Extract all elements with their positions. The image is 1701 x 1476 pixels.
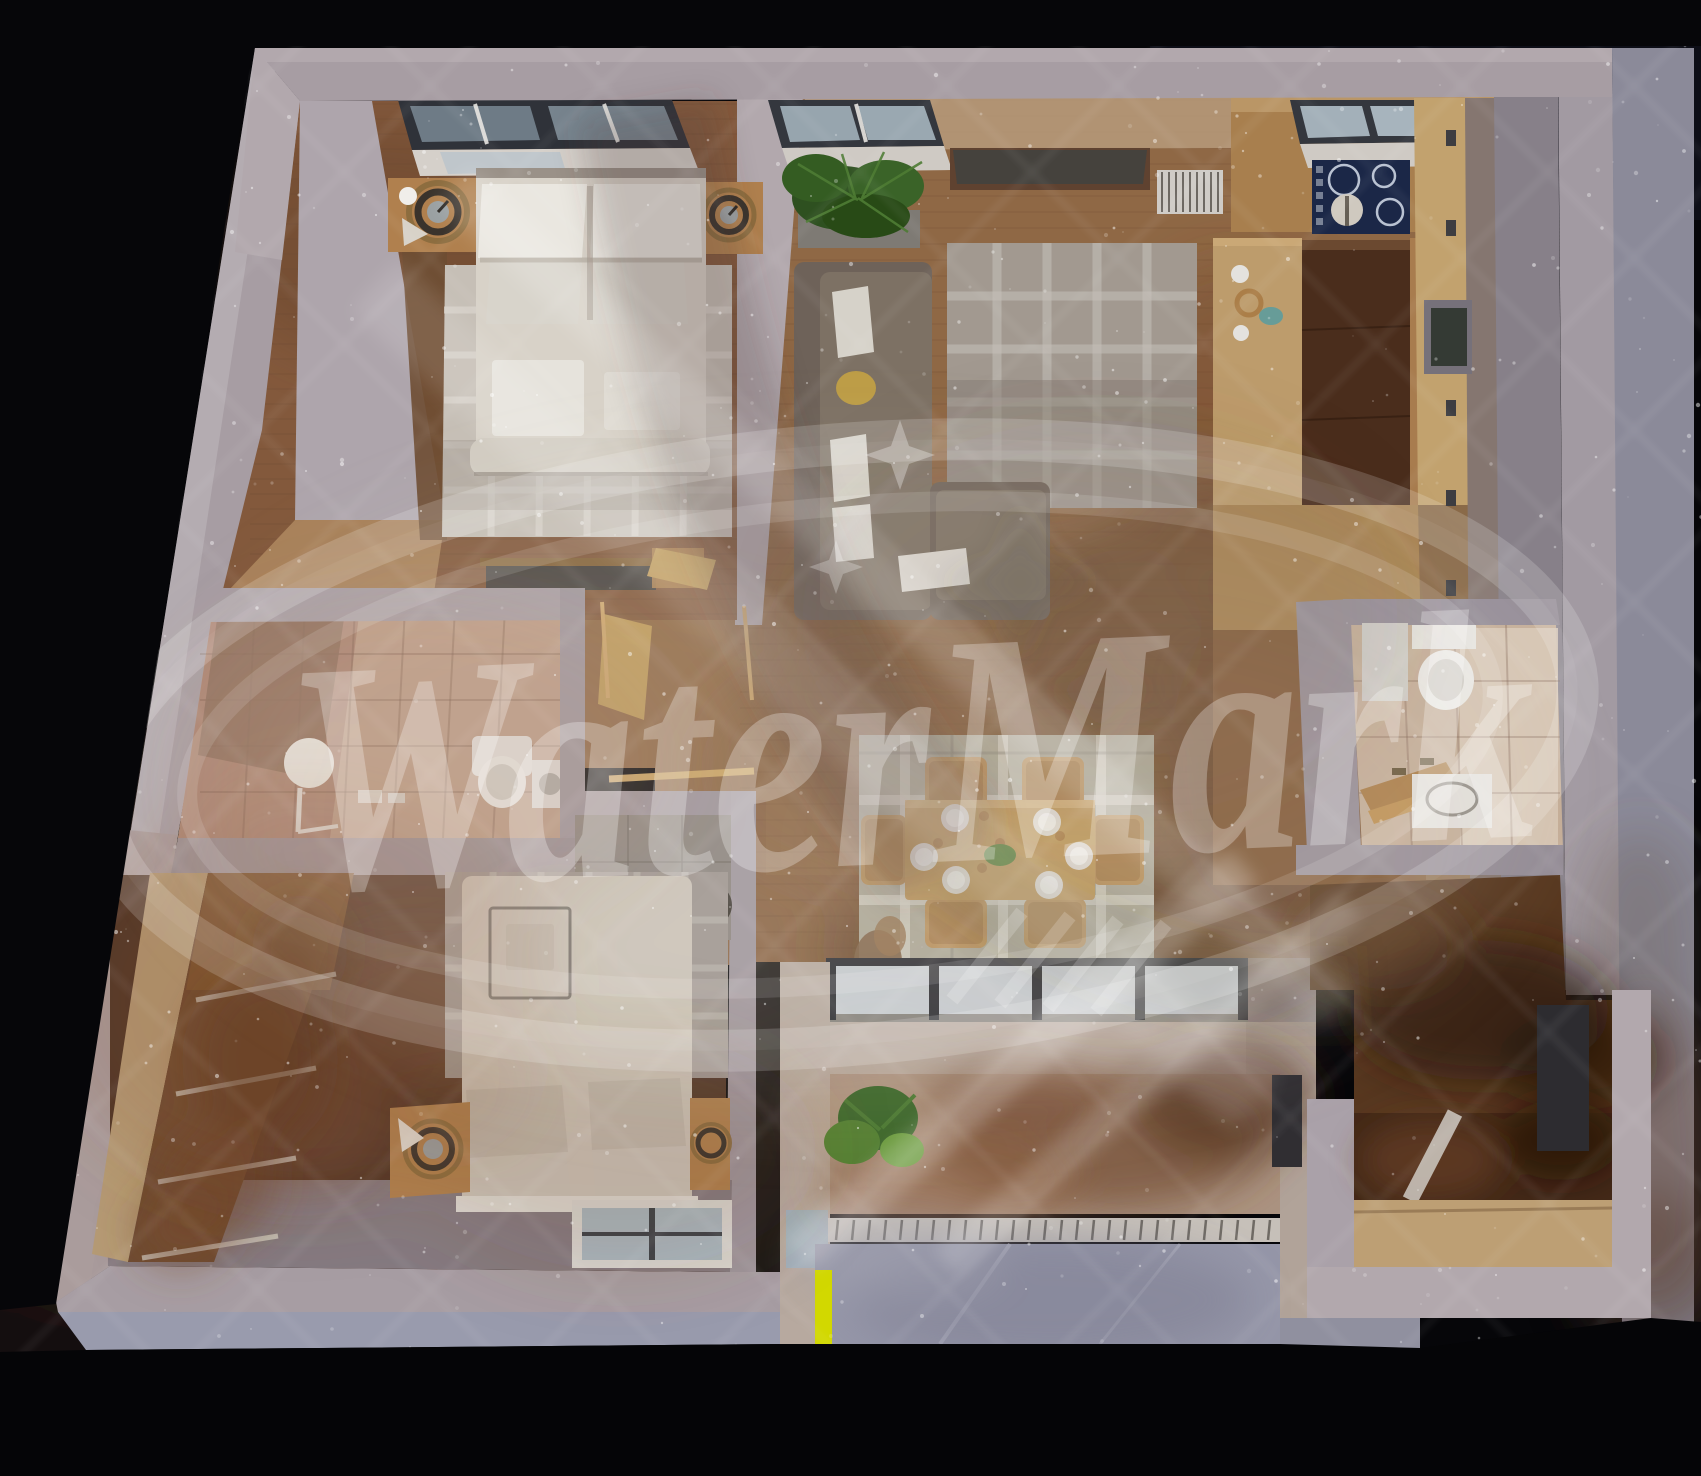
svg-text:WaterMark: WaterMark	[279, 543, 1544, 962]
